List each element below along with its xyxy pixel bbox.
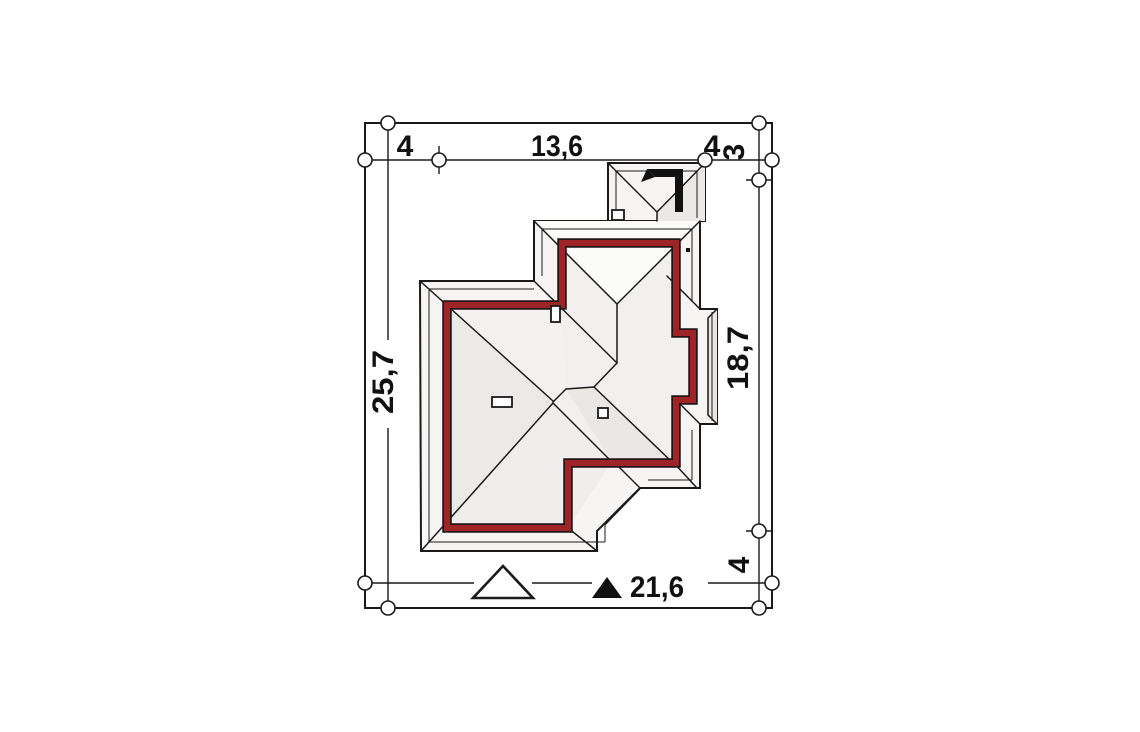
site-plan-page: 4 13,6 4 3 25,7 18,7 4 21,6 (0, 0, 1140, 732)
dim-label-right-top-setback: 3 (718, 144, 751, 161)
chimney (612, 210, 624, 220)
dim-label-building-total-width: 21,6 (630, 571, 684, 604)
dim-label-top-building-width: 13,6 (531, 130, 583, 163)
entrance-triangle-icon (473, 566, 533, 598)
house-roof-plan (420, 163, 717, 551)
dim-label-plot-depth: 25,7 (367, 350, 400, 414)
dim-label-building-depth: 18,7 (722, 326, 755, 390)
dim-label-top-left-setback: 4 (397, 130, 414, 163)
chimney (598, 408, 608, 418)
chimney (551, 306, 560, 322)
roof-vent-dot (686, 248, 690, 252)
filled-triangle-icon (592, 577, 622, 598)
site-plan-drawing: 4 13,6 4 3 25,7 18,7 4 21,6 (0, 0, 1140, 732)
dim-label-right-bottom-setback: 4 (723, 556, 756, 573)
chimney (492, 397, 512, 407)
